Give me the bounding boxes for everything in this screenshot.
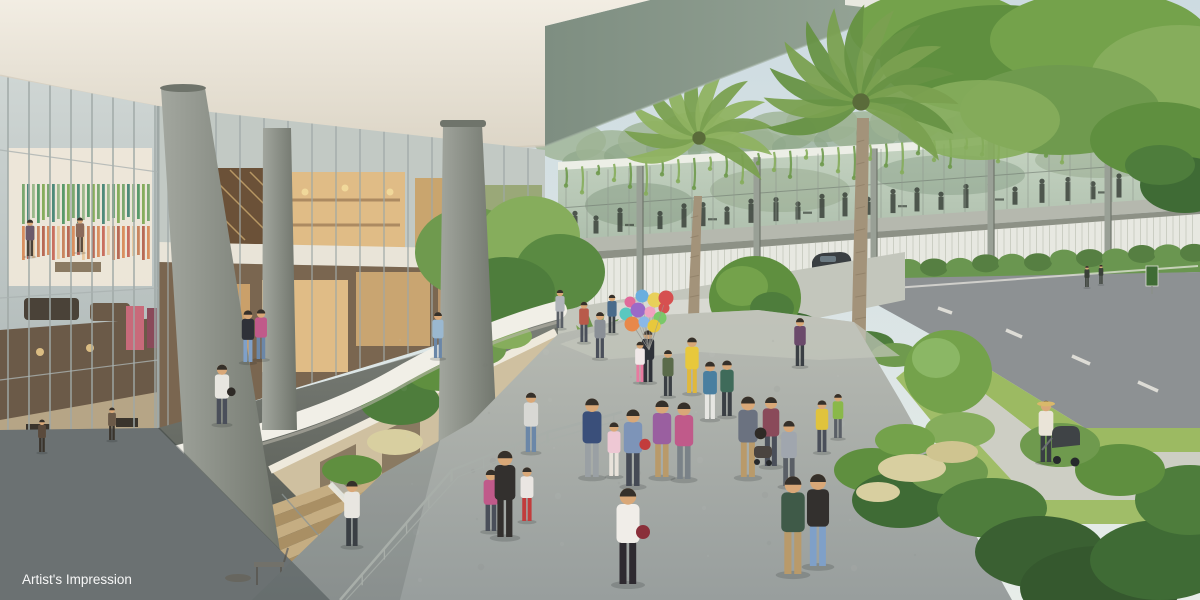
art-stripe [22,226,25,260]
diner-silhouette-head [963,184,968,189]
person-leg [772,435,777,466]
table-silhouette [803,212,812,214]
balloon [625,317,640,332]
person-leg [1087,278,1089,287]
hedge-bush [920,258,948,276]
diner-silhouette-head [657,211,662,216]
person-leg [1099,275,1100,284]
art-stripe [72,226,75,256]
vine-tip [836,169,840,173]
person-shadow [24,255,37,258]
pendant-light [387,189,394,196]
person-leg [801,345,805,367]
art-stripe [107,226,110,255]
hedge-bush [1024,253,1052,271]
person-torso [495,465,516,500]
art-stripe [32,184,35,218]
vine-tip [788,175,792,179]
art-stripe [87,184,90,217]
hedge-bush [972,254,1000,272]
vine-tip [724,173,728,177]
person-torso [555,296,564,312]
person-shadow [792,365,809,369]
art-stripe [72,184,75,218]
person-torso [794,326,806,346]
person-leg [636,364,639,382]
person-leg [532,425,536,452]
person-torso [833,401,844,419]
vine-tip [740,180,744,184]
paver-dot [483,363,487,367]
vine-tip [804,155,808,159]
person-torso [108,413,116,426]
artists-impression-rendering: Artist's Impression [0,0,1200,600]
person-leg [497,498,503,537]
diner-silhouette [891,194,896,213]
shop-window [356,272,430,346]
paver-dot [851,565,857,571]
person-torso [524,402,538,426]
person-leg [728,391,732,416]
person-leg [810,525,817,566]
person-bag [227,387,236,396]
person-leg [526,425,530,452]
diner-silhouette [749,204,754,223]
art-stripe [67,184,70,221]
person-leg [346,517,351,546]
person-leg [819,525,826,566]
person-shadow [776,571,811,579]
person-leg [217,397,221,424]
person-leg [112,425,114,440]
hedge-bush [1076,249,1104,267]
balloon [636,290,649,303]
vine [694,158,695,188]
person-shadow [252,358,270,362]
pendant-light [86,344,94,352]
person-shadow [813,451,831,455]
person-leg [641,364,644,382]
person-shadow [578,475,606,482]
vine-tip [756,161,760,165]
person-shadow [605,332,619,335]
person-leg [741,441,747,477]
table-silhouette [995,198,1004,200]
person-torso [215,374,229,398]
person-leg [629,541,636,584]
vine-tip [948,165,952,169]
person-leg [722,391,726,416]
art-stripe [122,184,125,220]
paver-dot [476,518,478,520]
person-torso [675,415,693,446]
person-hat [1037,401,1055,406]
stroller-wheel [754,459,760,465]
person-leg [262,337,266,359]
vine [886,144,887,166]
diner-silhouette [964,189,969,208]
paver-dot [565,341,567,343]
paver-dot [697,457,703,463]
person-leg [626,452,632,486]
pendant-light [302,189,309,196]
pendant-light [36,348,44,356]
diner-silhouette-head [593,215,598,220]
hedge-bush [1154,244,1182,262]
vine [822,148,823,164]
stroller-wheel [1053,456,1061,464]
person-torso [703,371,717,394]
paver-dot [709,351,715,357]
paver-dot [707,555,709,557]
flowering-shrub [856,482,900,502]
person-shadow [430,357,446,361]
person-bag [755,427,767,439]
stroller-body [1052,426,1080,448]
vine-tip [644,191,648,195]
person-leg [522,497,526,521]
lobby-sofa [90,303,130,321]
art-stripe [117,184,120,223]
vine-tip [916,151,920,155]
person-leg [580,324,583,342]
person-torso [579,308,589,324]
person-torso [583,411,602,443]
person-torso [38,425,46,438]
person-leg [27,240,30,256]
person-leg [593,442,599,477]
person-leg [42,437,44,452]
art-stripe [137,184,140,219]
paver-dot [555,493,561,499]
person-shadow [74,252,86,255]
diner-silhouette-head [1039,179,1044,184]
person-shadow [802,563,835,571]
person-torso [242,319,254,340]
person-shadow [239,361,257,365]
paver-dot [478,564,484,570]
person-leg [1085,278,1087,287]
art-stripe [97,184,100,219]
hedge-bush [946,258,974,276]
palm-crown-core [692,131,705,144]
art-stripe [122,226,125,258]
flowering-shrub [926,441,978,463]
person-torso [1099,268,1104,276]
diner-silhouette-head [724,206,729,211]
vine-tip [660,172,664,176]
person-leg [601,337,604,358]
diner-silhouette-head [617,208,622,213]
diner-silhouette-head [1012,186,1017,191]
person-leg [596,337,599,358]
person-torso [607,301,616,317]
diner-silhouette-head [890,189,895,194]
diner-silhouette-head [681,203,686,208]
diner-silhouette [594,221,599,234]
vine [774,152,775,170]
person-shadow [36,452,48,455]
person-leg [669,375,672,396]
vine-tip [996,159,1000,163]
person-leg [249,339,253,362]
person-leg [77,237,80,252]
person-torso [1084,269,1089,278]
car-window [820,256,836,262]
glazing-reflection [710,168,850,212]
person-torso [816,409,828,430]
person-leg [243,339,247,362]
person-shadow [490,534,521,541]
storefront-poster [126,306,144,350]
person-shadow [611,581,645,589]
paver-dot [418,578,422,582]
person-leg [687,368,691,393]
person-leg [223,397,227,424]
person-leg [257,337,261,359]
person-leg [560,311,563,328]
person-leg [834,418,837,438]
person-leg [705,393,709,419]
vine [614,164,615,180]
rendering-canvas: Artist's Impression [0,0,1200,600]
hedge-bush [1102,249,1130,267]
person-torso [608,431,621,453]
person-bag [636,525,650,539]
vine-tip [676,179,680,183]
vine-tip [900,170,904,174]
paver-dot [849,519,851,521]
person-leg [796,345,800,367]
vine [726,156,727,176]
palm-crown-core [852,93,869,110]
diner-silhouette [796,207,801,220]
vine-tip [580,190,584,194]
diner-silhouette [1013,192,1018,205]
person-torso [781,492,804,532]
paver-dot [774,386,780,392]
sign-panel [1146,266,1158,286]
person-leg [794,530,801,574]
diner-silhouette [1040,184,1045,203]
vine [646,162,647,194]
person-leg [749,441,755,477]
art-stripe [102,226,105,256]
art-stripe [127,226,130,257]
art-stripe [42,226,45,256]
person-shadow [592,357,608,361]
art-stripe [107,184,110,221]
diner-silhouette-head [1116,173,1121,178]
person-leg [434,337,437,358]
vine-tip [708,167,712,171]
person-leg [528,497,532,521]
paver-dot [630,376,632,378]
person-shadow [517,520,536,524]
vine [582,166,583,192]
paver-dot [837,375,839,377]
person-leg [80,237,83,252]
diner-silhouette [915,192,920,211]
paver-dot [560,542,564,546]
person-shadow [577,341,591,344]
art-stripe [62,226,65,258]
vine [854,146,855,178]
art-stripe [102,184,105,224]
vine-tip [628,185,632,189]
diner-silhouette [618,213,623,232]
balloon [645,307,656,318]
person-leg [1101,275,1102,284]
person-leg [506,498,512,537]
person-torso [653,413,671,444]
person-leg [486,503,490,531]
person-leg [439,337,442,358]
caption-artists-impression: Artist's Impression [22,572,132,587]
person-leg [664,375,667,396]
person-leg [109,425,111,440]
person-leg [612,316,615,333]
diner-silhouette-head [819,194,824,199]
art-stripe [147,226,150,259]
paver-dot [762,492,768,498]
person-torso [432,320,443,339]
paver-dot [767,541,771,545]
vine [838,147,839,171]
art-stripe [117,226,120,259]
person-torso [720,370,733,393]
art-stripe [142,226,145,260]
flowering-shrub [367,429,423,455]
balloon [659,291,674,306]
art-stripe [127,184,130,217]
person-shadow [682,392,702,397]
person-leg [634,452,640,486]
person-torso [26,226,35,241]
person-shadow [670,477,697,483]
art-stripe [77,184,80,223]
planter-shrub [322,455,382,485]
diner-silhouette-head [842,192,847,197]
person-torso [685,347,698,370]
person-torso [781,432,797,459]
person-leg [609,452,613,476]
person-leg [663,443,669,477]
column-capital [160,84,206,92]
bed-shrub [875,424,935,456]
vine-tip [884,163,888,167]
person-shadow [633,381,647,384]
art-stripe [52,184,55,222]
person-leg [39,437,41,452]
art-stripe [42,184,45,220]
diner-silhouette [843,197,848,216]
person-shadow [700,418,720,423]
person-bag [639,439,650,450]
person-shadow [604,475,623,479]
paver-dot [401,385,407,391]
vine-tip [772,168,776,172]
person-leg [693,368,697,393]
person-shadow [619,484,646,490]
person-shadow [211,423,232,428]
vine [630,163,631,187]
art-stripe [147,184,150,221]
person-torso [521,476,534,498]
hedge-bush [998,254,1026,272]
person-leg [585,324,588,342]
paver-dot [618,482,620,484]
paver-dot [695,411,697,413]
person-shadow [717,415,737,420]
diner-silhouette [820,199,825,218]
paver-dot [543,349,549,355]
person-leg [655,443,661,477]
art-stripe [67,226,70,257]
paver-dot [772,340,774,342]
diner-silhouette [725,212,730,225]
person-leg [492,503,496,531]
vine [566,168,567,186]
diner-silhouette [1117,179,1122,198]
diner-silhouette-head [914,187,919,192]
paver-dot [406,434,410,438]
paver-dot [914,554,916,556]
person-torso [662,358,673,377]
art-stripe [37,184,40,223]
person-torso [624,422,642,453]
balloon [631,303,646,318]
paver-dot [702,506,706,510]
person-torso [617,504,640,543]
vine-tip [612,178,616,182]
person-leg [685,445,691,479]
person-torso [76,223,84,237]
stroller-body [754,446,772,458]
art-stripe [97,226,100,257]
diner-silhouette-head [795,201,800,206]
person-leg [839,418,842,438]
person-leg [784,530,791,574]
person-leg [649,359,653,382]
vine-tip [596,171,600,175]
paver-dot [548,398,552,402]
vine-tip [932,158,936,162]
person-leg [585,442,591,477]
fern-fronds [1125,145,1195,185]
vine [678,159,679,181]
person-leg [557,311,560,328]
vine-tip [692,186,696,190]
person-shadow [660,395,676,399]
person-shadow [1098,284,1105,286]
person-leg [609,316,612,333]
person-leg [353,517,358,546]
paver-dot [488,412,490,414]
stroller-wheel [1071,458,1080,467]
pendant-light [342,185,349,192]
hedge-bush [1128,245,1156,263]
person-shadow [106,440,118,443]
person-leg [711,393,715,419]
person-shadow [340,544,363,549]
person-shadow [553,327,567,330]
person-leg [30,240,33,256]
art-stripe [62,184,65,224]
person-shadow [734,475,763,482]
person-leg [615,452,619,476]
person-torso [255,317,267,337]
